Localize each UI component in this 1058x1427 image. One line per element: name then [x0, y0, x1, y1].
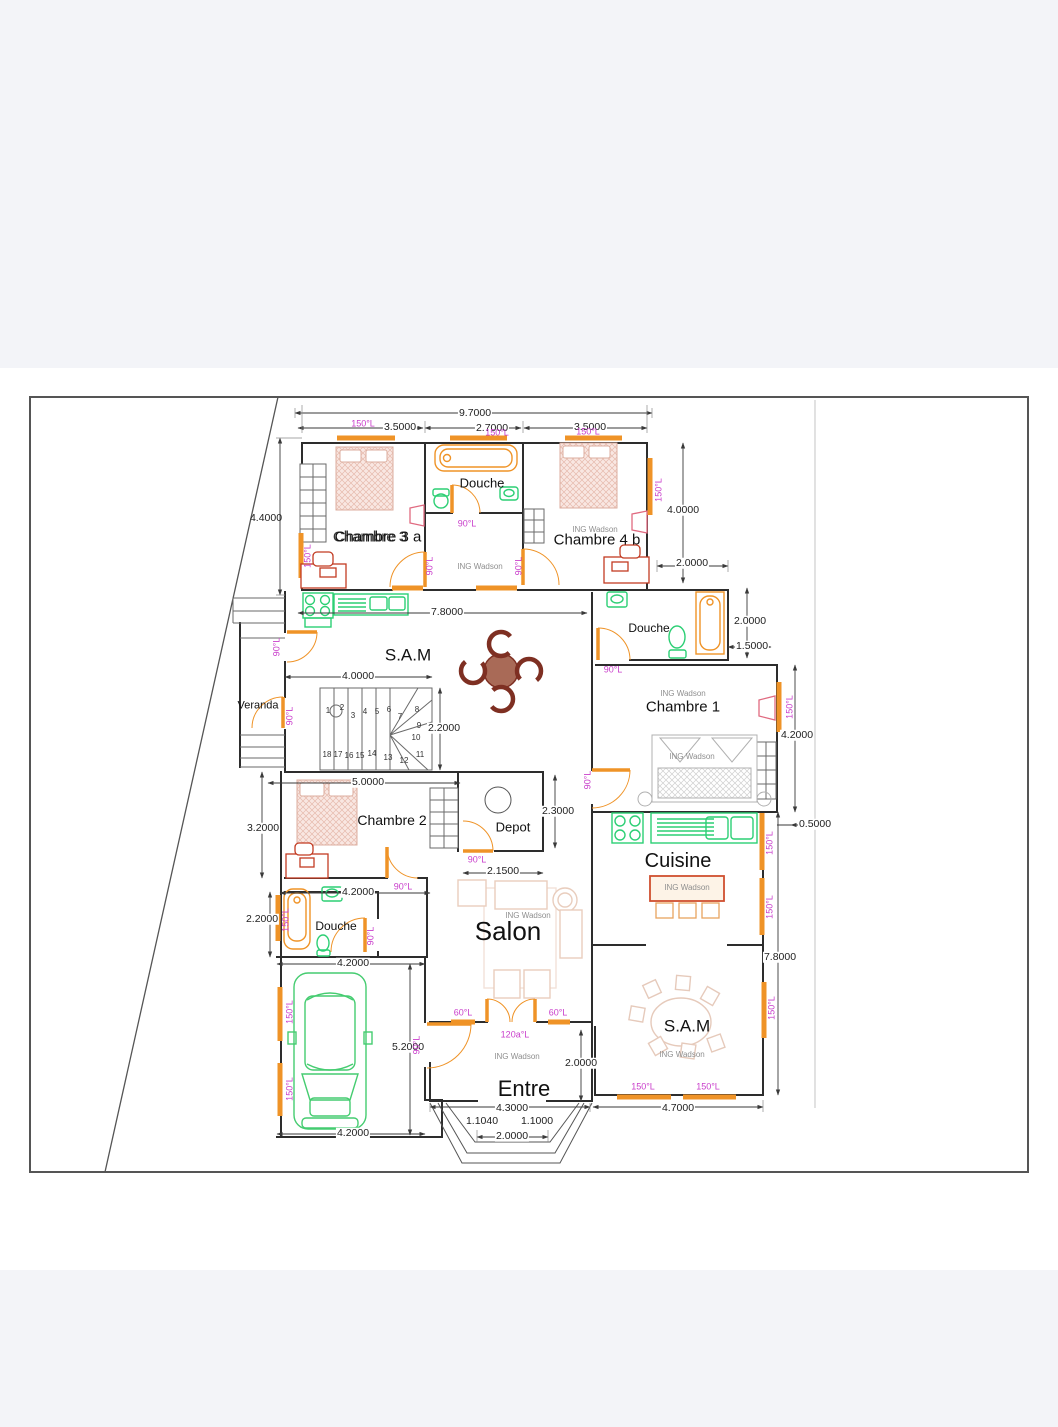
bed-chambre1	[638, 735, 771, 806]
closet-chambre1	[757, 742, 776, 799]
bed-chambre3a	[336, 447, 393, 510]
bed-chambre4b	[560, 443, 617, 508]
closet-chambre3a	[300, 464, 326, 542]
page: { "palette": { "margin": "#f3f4f8", "she…	[0, 0, 1058, 1427]
closet-chambre4b	[524, 509, 544, 543]
floor-plan-drawing	[0, 0, 1058, 1427]
bed-chambre2	[297, 780, 357, 845]
closet-chambre2	[430, 788, 458, 848]
